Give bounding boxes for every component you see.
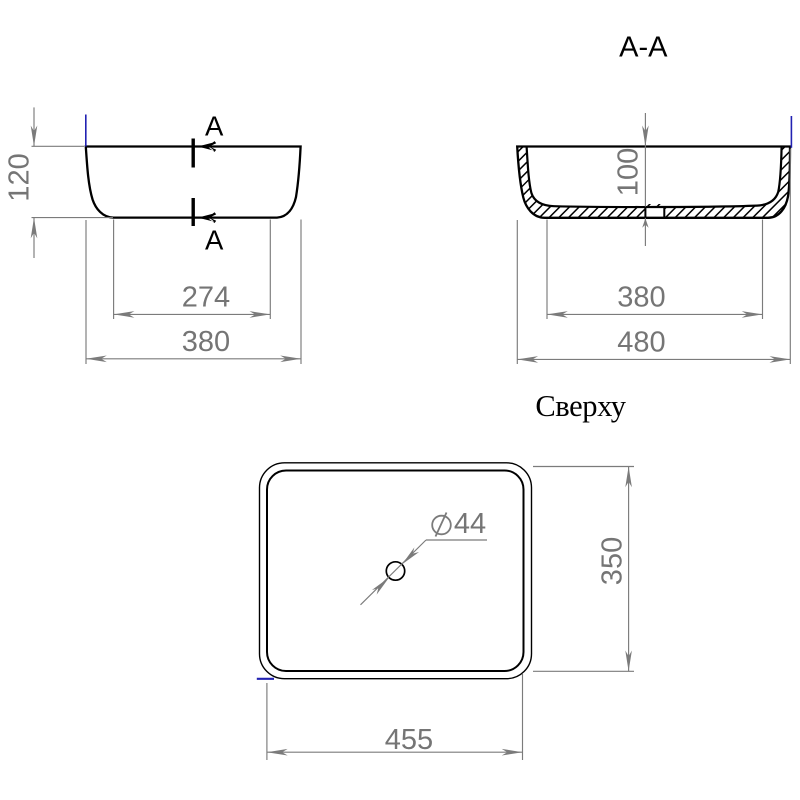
svg-text:A-A: A-A xyxy=(619,32,668,64)
svg-text:Сверху: Сверху xyxy=(535,389,626,423)
svg-text:A: A xyxy=(205,111,224,142)
svg-text:380: 380 xyxy=(617,282,665,314)
svg-text:44: 44 xyxy=(454,508,486,540)
svg-text:274: 274 xyxy=(182,282,230,314)
svg-text:380: 380 xyxy=(182,326,230,358)
svg-text:480: 480 xyxy=(617,327,665,359)
svg-text:120: 120 xyxy=(4,153,36,201)
svg-text:100: 100 xyxy=(613,148,645,196)
svg-text:350: 350 xyxy=(597,537,629,585)
svg-text:A: A xyxy=(205,225,224,256)
svg-text:455: 455 xyxy=(385,724,433,756)
